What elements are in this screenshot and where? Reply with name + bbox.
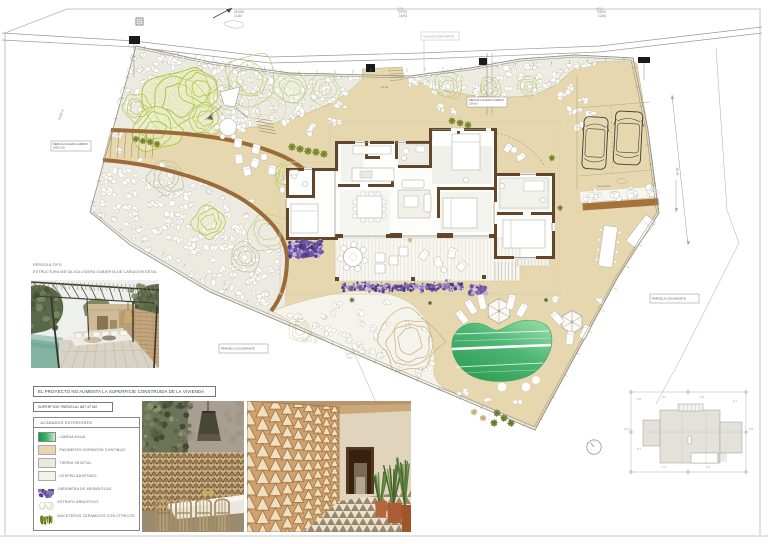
svg-text:PARCELA COLINDANTE: PARCELA COLINDANTE	[221, 347, 255, 351]
svg-text:6,6: 6,6	[749, 427, 753, 431]
svg-text:12,4: 12,4	[624, 427, 630, 431]
svg-text:7,3: 7,3	[662, 465, 666, 469]
svg-text:4,1: 4,1	[733, 399, 737, 403]
svg-text:±0.00: ±0.00	[381, 85, 388, 89]
svg-text:56,56: 56,56	[675, 168, 680, 176]
svg-text:VALLADO EXISTENTE: VALLADO EXISTENTE	[423, 35, 454, 39]
svg-text:230 m2: 230 m2	[469, 102, 478, 106]
svg-text:6,2: 6,2	[662, 395, 666, 399]
svg-text:14.84: 14.84	[234, 14, 242, 18]
svg-text:(2030 m2): (2030 m2)	[53, 146, 65, 150]
svg-text:5,9: 5,9	[706, 465, 710, 469]
svg-text:4,9: 4,9	[637, 397, 641, 401]
svg-text:16.94: 16.94	[399, 14, 407, 18]
svg-text:Telefonillo: Telefonillo	[597, 184, 611, 188]
svg-text:12.84: 12.84	[598, 14, 606, 18]
svg-text:8,3: 8,3	[637, 447, 641, 451]
svg-text:PARCELA COLINDANTE: PARCELA COLINDANTE	[652, 297, 686, 301]
svg-text:9,4: 9,4	[700, 395, 704, 399]
